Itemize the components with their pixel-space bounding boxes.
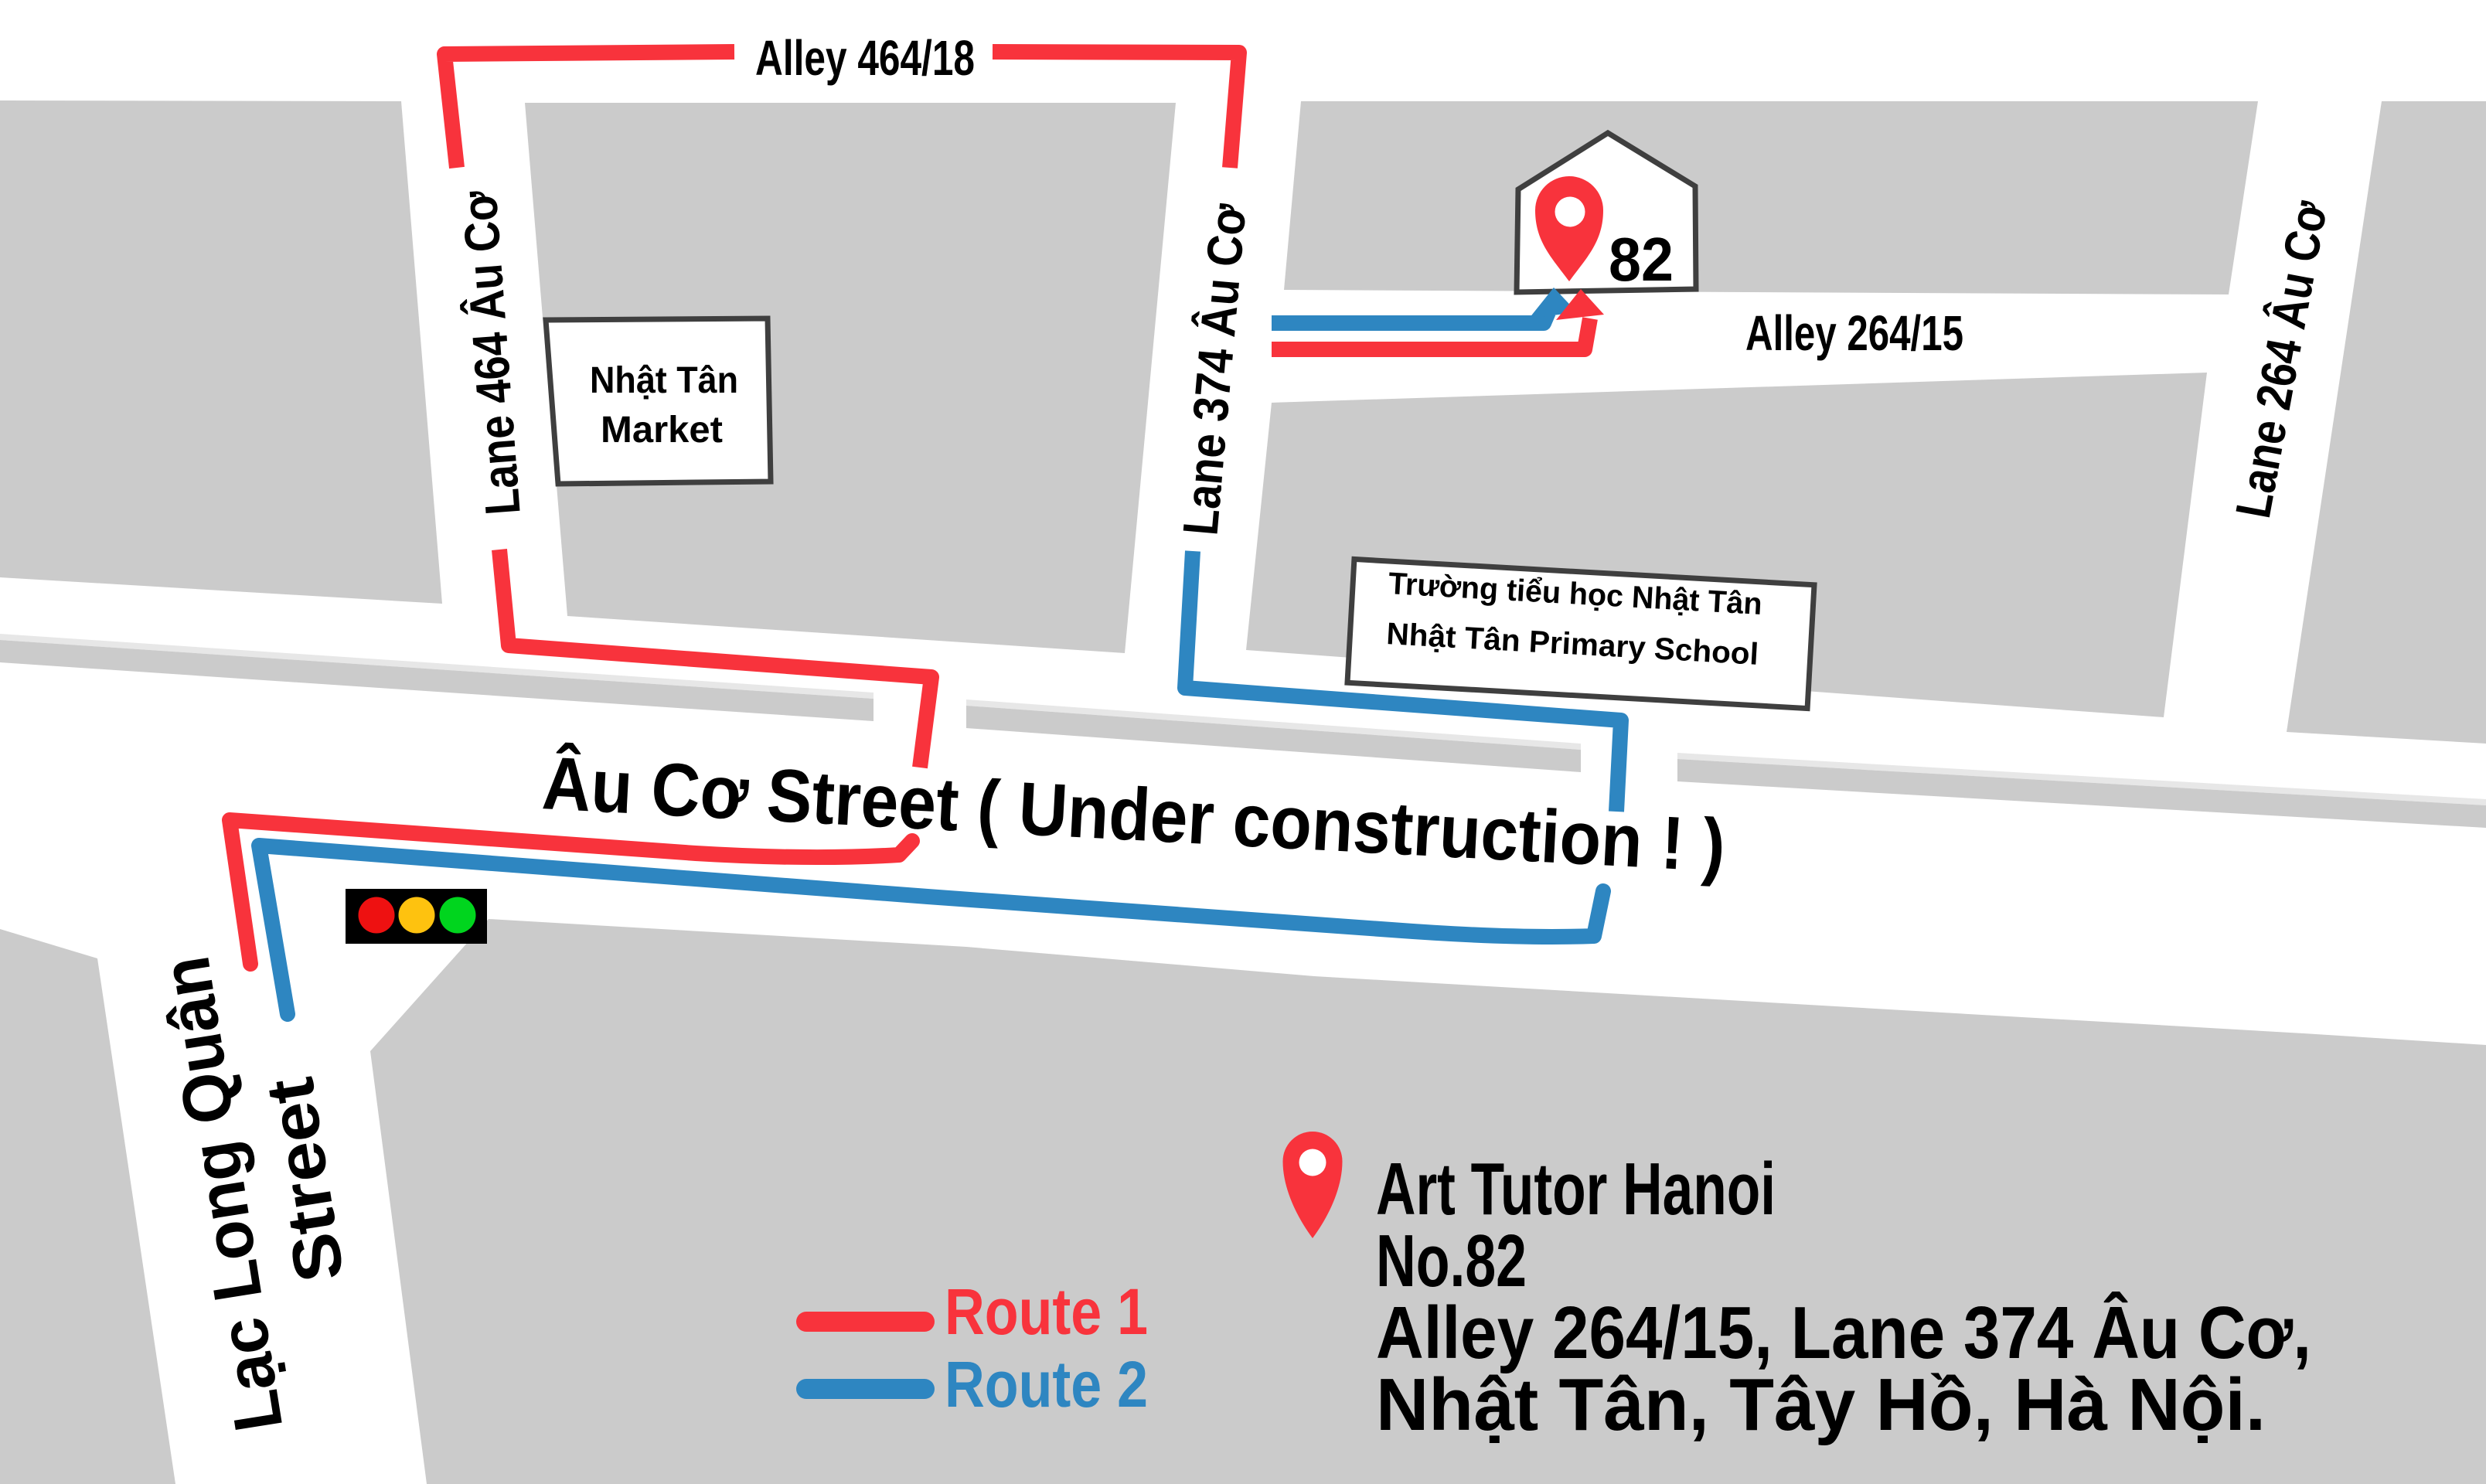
svg-text:Route 1: Route 1: [945, 1275, 1148, 1348]
svg-text:No.82: No.82: [1376, 1220, 1527, 1302]
svg-text:Nhật Tân, Tây Hồ, Hà Nội.: Nhật Tân, Tây Hồ, Hà Nội.: [1376, 1363, 2266, 1446]
svg-text:Art Tutor Hanoi: Art Tutor Hanoi: [1376, 1148, 1776, 1230]
svg-text:82: 82: [1609, 225, 1674, 294]
svg-text:Alley 464/18: Alley 464/18: [755, 30, 975, 86]
svg-text:Route 2: Route 2: [945, 1348, 1148, 1421]
svg-text:Alley 264/15, Lane 374 Âu Cơ,: Alley 264/15, Lane 374 Âu Cơ,: [1376, 1291, 2311, 1374]
svg-text:Market: Market: [601, 410, 723, 451]
svg-text:Nhật Tân: Nhật Tân: [590, 360, 738, 401]
svg-text:Alley 264/15: Alley 264/15: [1745, 305, 1963, 361]
